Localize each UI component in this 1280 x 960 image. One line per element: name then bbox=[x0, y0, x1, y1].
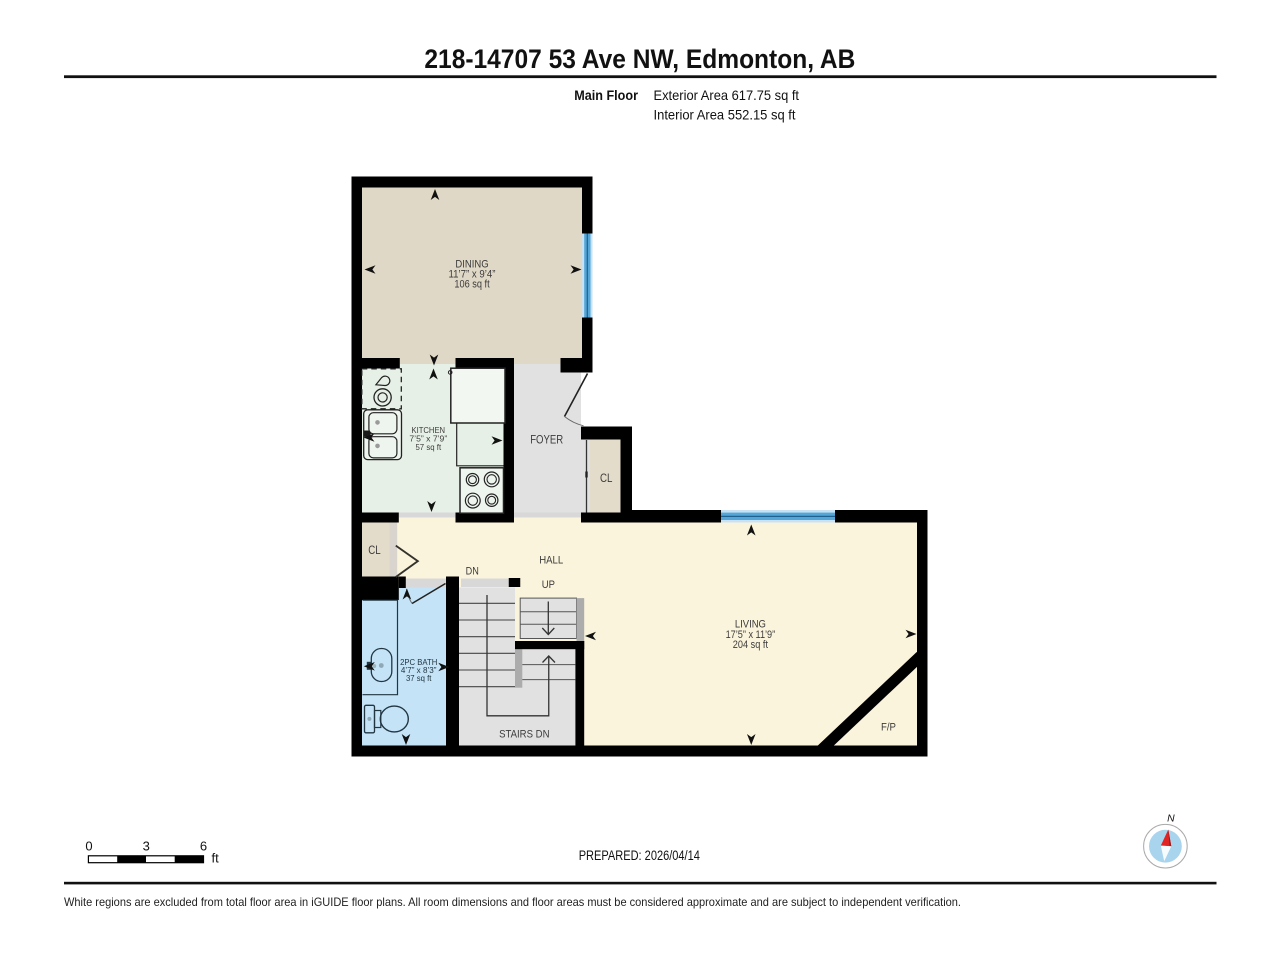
svg-text:DN: DN bbox=[466, 565, 479, 577]
svg-text:STAIRS DN: STAIRS DN bbox=[499, 729, 549, 741]
svg-text:Main Floor: Main Floor bbox=[574, 88, 638, 103]
svg-text:F/P: F/P bbox=[881, 722, 896, 734]
svg-text:HALL: HALL bbox=[539, 555, 563, 567]
svg-text:0: 0 bbox=[85, 839, 92, 854]
svg-text:106 sq ft: 106 sq ft bbox=[454, 279, 489, 291]
svg-text:6: 6 bbox=[200, 839, 207, 854]
svg-text:FOYER: FOYER bbox=[530, 433, 563, 447]
svg-text:PREPARED: 2026/04/14: PREPARED: 2026/04/14 bbox=[579, 848, 701, 863]
svg-text:37 sq ft: 37 sq ft bbox=[406, 674, 432, 683]
svg-text:CL: CL bbox=[368, 544, 381, 557]
svg-text:204 sq ft: 204 sq ft bbox=[733, 639, 768, 651]
svg-text:57 sq ft: 57 sq ft bbox=[415, 443, 441, 452]
svg-text:Interior Area 552.15 sq ft: Interior Area 552.15 sq ft bbox=[654, 108, 796, 123]
svg-text:UP: UP bbox=[542, 579, 555, 591]
svg-text:218-14707 53 Ave NW, Edmonton,: 218-14707 53 Ave NW, Edmonton, AB bbox=[424, 44, 855, 74]
svg-text:N: N bbox=[1167, 814, 1175, 825]
svg-text:ft: ft bbox=[212, 851, 220, 866]
svg-text:CL: CL bbox=[600, 472, 613, 485]
svg-text:Exterior Area 617.75 sq ft: Exterior Area 617.75 sq ft bbox=[654, 88, 800, 103]
svg-text:3: 3 bbox=[143, 839, 150, 854]
svg-text:White regions are excluded fro: White regions are excluded from total fl… bbox=[64, 895, 961, 909]
